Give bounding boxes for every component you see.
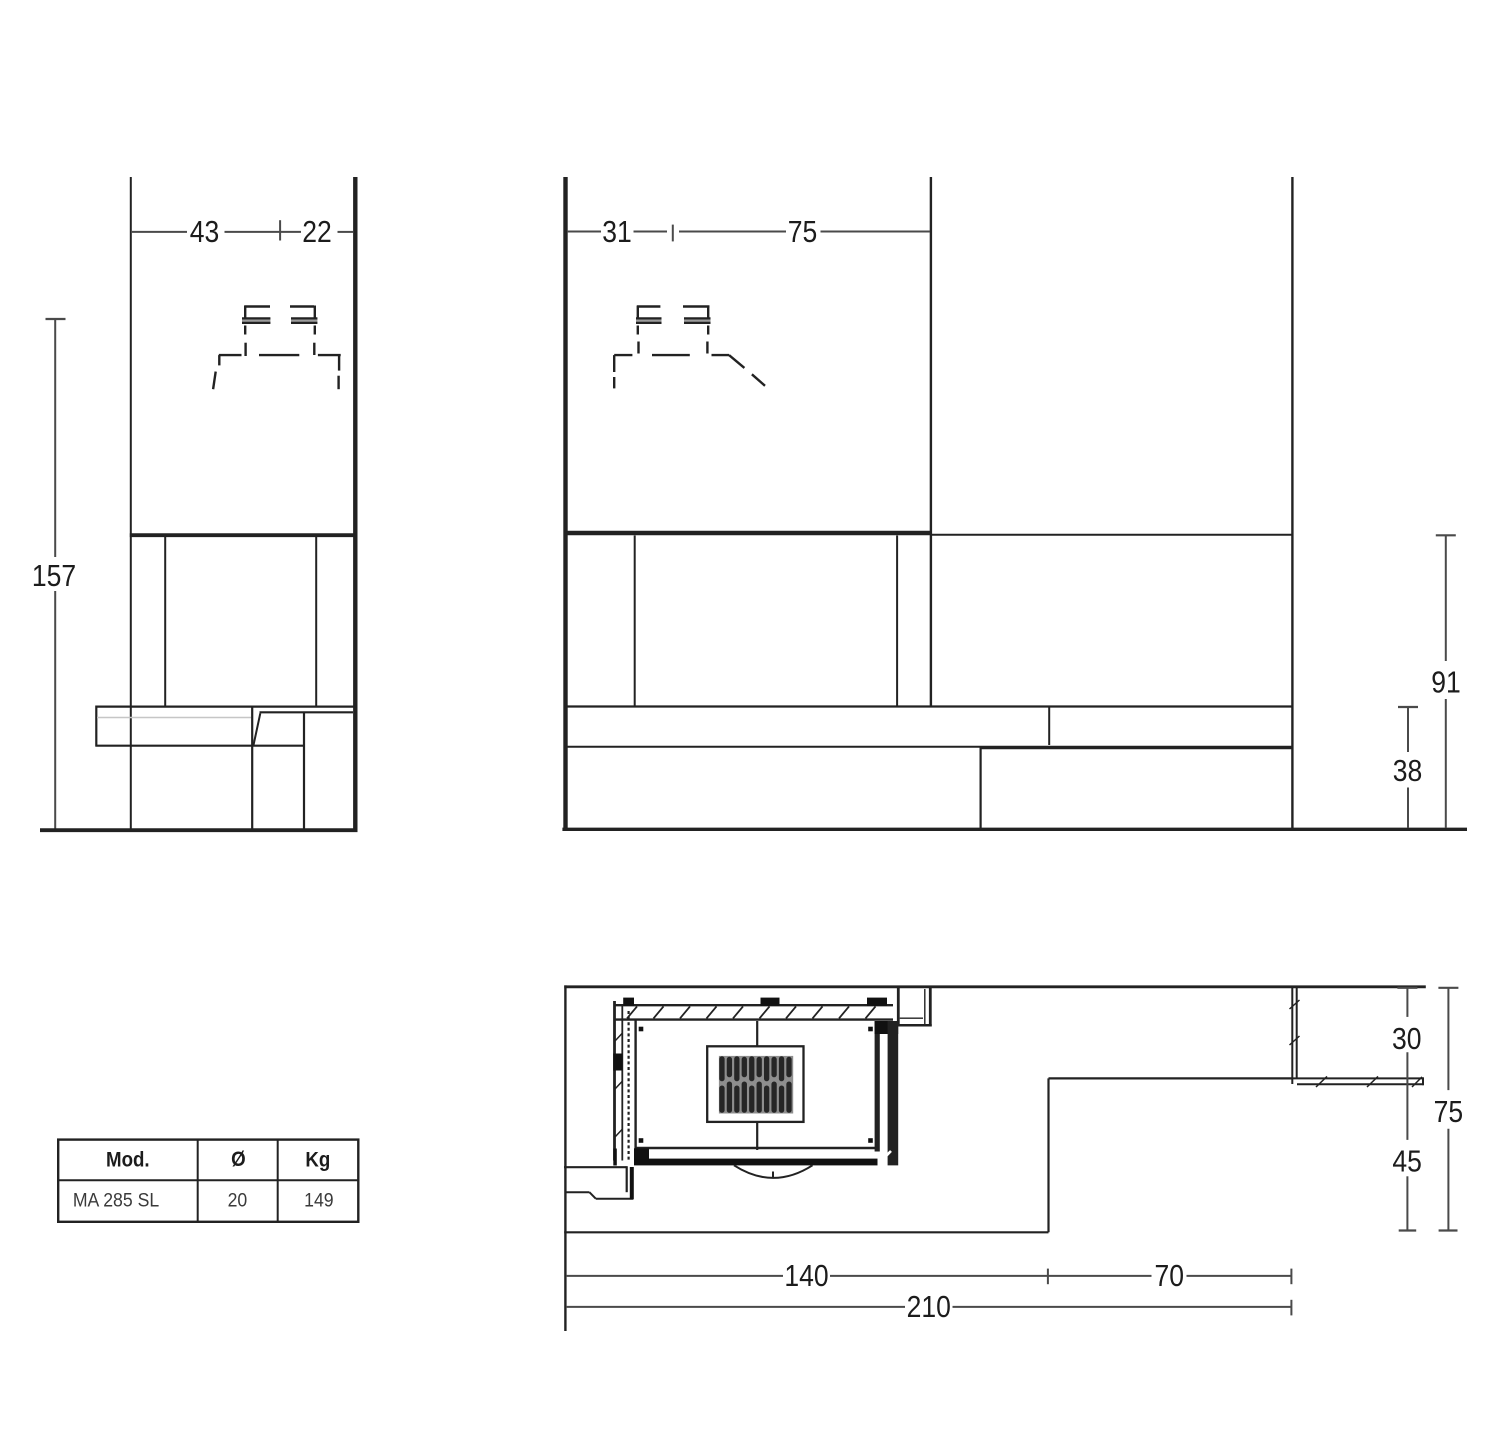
svg-text:210: 210 [907,1291,951,1325]
svg-text:140: 140 [784,1260,828,1294]
svg-text:70: 70 [1154,1260,1184,1294]
svg-text:75: 75 [788,215,818,249]
svg-text:MA 285 SL: MA 285 SL [73,1189,159,1211]
svg-text:Mod.: Mod. [106,1148,150,1171]
svg-text:45: 45 [1392,1145,1422,1179]
svg-text:Kg: Kg [305,1148,330,1171]
svg-text:157: 157 [32,559,76,593]
svg-text:Ø: Ø [231,1148,246,1171]
svg-text:30: 30 [1392,1023,1422,1057]
svg-text:91: 91 [1431,666,1461,700]
svg-text:20: 20 [228,1189,248,1211]
svg-text:75: 75 [1434,1095,1464,1129]
svg-text:38: 38 [1393,754,1423,788]
svg-text:149: 149 [304,1189,333,1211]
svg-text:31: 31 [602,215,632,249]
svg-text:22: 22 [302,215,332,249]
svg-text:43: 43 [190,215,220,249]
